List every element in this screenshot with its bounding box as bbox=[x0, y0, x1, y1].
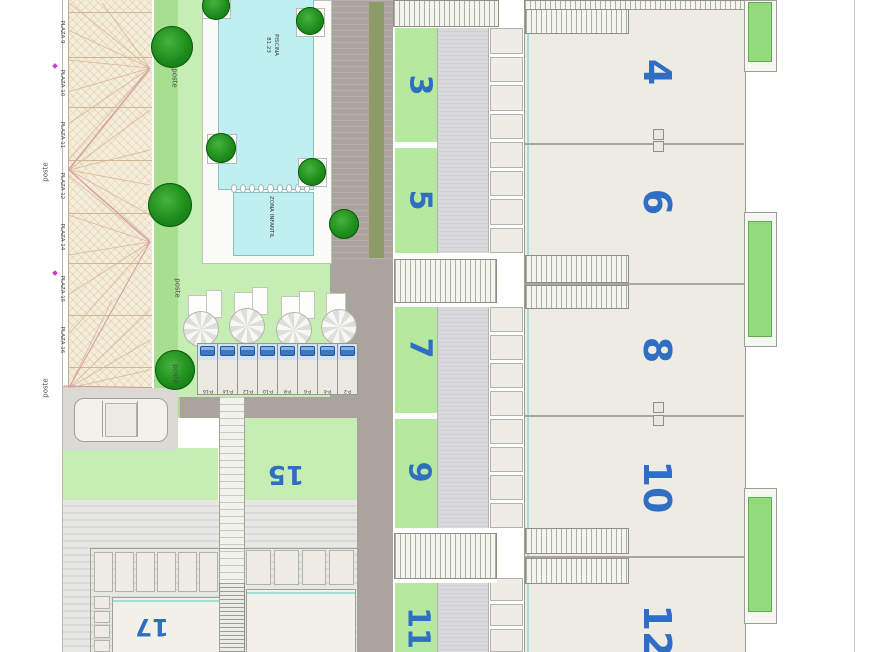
parking-stall: P-2 bbox=[337, 343, 358, 395]
unit-9-number: 9 bbox=[402, 462, 437, 483]
storage-row-a bbox=[94, 552, 218, 592]
house-stair bbox=[525, 9, 629, 34]
roof-strip bbox=[437, 578, 489, 652]
unit-11-number: 11 bbox=[401, 607, 436, 649]
storage-row-b bbox=[246, 550, 354, 585]
tree-icon bbox=[329, 209, 359, 239]
tree-icon bbox=[298, 158, 326, 186]
unit-7-number: 7 bbox=[403, 338, 438, 359]
stepping-stone bbox=[240, 184, 246, 193]
unit-8-number: 8 bbox=[635, 337, 679, 363]
post-label: poste bbox=[42, 378, 50, 397]
terrace-cell bbox=[490, 307, 523, 332]
car-icon bbox=[220, 346, 235, 356]
house-stair bbox=[525, 285, 629, 309]
car-rear-window bbox=[137, 401, 138, 437]
dimension-marker bbox=[653, 141, 664, 152]
stall-label: P-10 bbox=[263, 388, 273, 393]
plaza-label: PLAZA 10 bbox=[56, 77, 68, 89]
parasol-icon bbox=[183, 311, 219, 347]
unit-17-number: 17 bbox=[135, 613, 168, 641]
unit-15-number: 15 bbox=[268, 459, 304, 489]
site-plan: PLAZA 9 PLAZA 10 PLAZA 11 PLAZA 12 PLAZA… bbox=[0, 0, 870, 652]
storage-cell bbox=[246, 550, 271, 585]
terrace-cell bbox=[490, 199, 523, 225]
storage-cell bbox=[94, 640, 110, 652]
unit-4-number: 4 bbox=[635, 59, 679, 85]
storage-cell bbox=[178, 552, 197, 592]
terrace-cell bbox=[490, 363, 523, 388]
balcony-garden bbox=[748, 2, 772, 62]
car bbox=[74, 398, 168, 442]
storage-cell bbox=[302, 550, 327, 585]
annex-room-glass-wall bbox=[247, 592, 355, 594]
covered-parking-row: P-16 P-14 P-12 P-10 P-8 P-6 P-4 bbox=[197, 343, 357, 395]
pergola-top bbox=[393, 0, 499, 27]
stall-label: P-8 bbox=[284, 388, 291, 393]
stall-label: P-4 bbox=[324, 388, 331, 393]
plaza-label: PLAZA 12 bbox=[56, 180, 68, 192]
unit-divider bbox=[524, 556, 744, 558]
lawn-southwest bbox=[63, 448, 218, 500]
unit-7-garden bbox=[395, 305, 437, 413]
sheet-edge-line bbox=[854, 0, 855, 652]
post-label: poste bbox=[42, 162, 50, 181]
unit-17-glass-wall bbox=[113, 600, 219, 602]
post-label: poste bbox=[172, 364, 180, 383]
balcony-garden bbox=[748, 497, 772, 612]
car-icon bbox=[280, 346, 295, 356]
road-vertical-lower bbox=[357, 418, 393, 652]
storage-cell bbox=[94, 625, 110, 638]
parking-stall: P-4 bbox=[317, 343, 338, 395]
terrace-cell bbox=[490, 171, 523, 197]
parking-stall: P-10 bbox=[257, 343, 278, 395]
terrace-cell bbox=[490, 228, 523, 254]
terrace-cell bbox=[490, 629, 523, 652]
plaza-label: PLAZA 11 bbox=[56, 129, 68, 141]
stall-label: P-14 bbox=[223, 388, 233, 393]
parasol-icon bbox=[229, 308, 265, 344]
storage-cell bbox=[199, 552, 218, 592]
unit-divider bbox=[524, 143, 744, 145]
unit-12-number: 12 bbox=[635, 605, 679, 652]
unit-3-number: 3 bbox=[403, 75, 438, 96]
terrace-cell bbox=[490, 604, 523, 627]
plaza-label: PLAZA 9 bbox=[56, 26, 68, 38]
tree-icon bbox=[148, 183, 192, 227]
stall-label: P-16 bbox=[203, 388, 213, 393]
parasol-icon bbox=[321, 309, 357, 345]
post-label: poste bbox=[174, 278, 182, 297]
car-cabin bbox=[105, 403, 137, 437]
roof-strip bbox=[437, 307, 489, 528]
terrace-cell bbox=[490, 57, 523, 83]
balcony-garden bbox=[748, 221, 772, 337]
dimension-marker bbox=[653, 402, 664, 413]
stepping-stone bbox=[277, 184, 283, 193]
pool-area: 81.23 bbox=[264, 22, 272, 68]
storage-cell bbox=[136, 552, 155, 592]
roof-strip bbox=[437, 28, 489, 253]
terrace-column bbox=[490, 578, 523, 652]
tree-icon bbox=[151, 26, 193, 68]
house-stair bbox=[525, 528, 629, 554]
parking-stall: P-14 bbox=[217, 343, 238, 395]
kids-zone-label: ZONA INFANTIL bbox=[264, 192, 274, 242]
annex-room-right bbox=[246, 589, 356, 652]
car-icon bbox=[300, 346, 315, 356]
storage-cell bbox=[274, 550, 299, 585]
post-label: poste bbox=[171, 68, 179, 87]
pool-name: PISCINA bbox=[272, 22, 280, 68]
dimension-marker bbox=[653, 415, 664, 426]
parking-stall: P-12 bbox=[237, 343, 258, 395]
terrace-cell bbox=[490, 85, 523, 111]
unit-divider bbox=[524, 283, 744, 285]
car-icon bbox=[340, 346, 355, 356]
plaza-label: PLAZA 14 bbox=[56, 231, 68, 243]
unit-10-number: 10 bbox=[635, 461, 679, 514]
stall-label: P-2 bbox=[344, 388, 351, 393]
car-windshield bbox=[102, 401, 103, 437]
terrace-cell bbox=[490, 142, 523, 168]
car-icon bbox=[260, 346, 275, 356]
road-hedge-strip bbox=[369, 2, 384, 258]
storage-cell bbox=[94, 552, 113, 592]
storage-cell bbox=[94, 611, 110, 624]
stair-band bbox=[394, 259, 497, 303]
stair-band bbox=[394, 533, 497, 579]
parking-stall: P-8 bbox=[277, 343, 298, 395]
house-stair bbox=[525, 558, 629, 584]
parking-stall: P-16 bbox=[197, 343, 218, 395]
terrace-column bbox=[490, 307, 523, 528]
terrace-cell bbox=[490, 28, 523, 54]
storage-cell bbox=[157, 552, 176, 592]
parking-stall: P-6 bbox=[297, 343, 318, 395]
stepping-stone bbox=[231, 184, 237, 193]
terrace-cell bbox=[490, 503, 523, 528]
house-stair bbox=[525, 255, 629, 283]
plaza-label-column: PLAZA 9 PLAZA 10 PLAZA 11 PLAZA 12 PLAZA… bbox=[56, 26, 68, 346]
terrace-cell bbox=[490, 419, 523, 444]
unit-5-number: 5 bbox=[403, 190, 438, 211]
unit-divider bbox=[524, 415, 744, 417]
terrace-cell bbox=[490, 391, 523, 416]
plaza-label: PLAZA 16 bbox=[56, 334, 68, 346]
pool-label: PISCINA 81.23 bbox=[264, 22, 280, 68]
stepping-stone bbox=[286, 184, 292, 193]
terrace-column bbox=[490, 28, 523, 253]
car-icon bbox=[240, 346, 255, 356]
tree-icon bbox=[206, 133, 236, 163]
stall-label: P-12 bbox=[243, 388, 253, 393]
terrace-cell bbox=[490, 335, 523, 360]
storage-cell bbox=[94, 596, 110, 609]
unit-6-number: 6 bbox=[635, 189, 679, 215]
terrace-cell bbox=[490, 447, 523, 472]
car-icon bbox=[320, 346, 335, 356]
dimension-marker bbox=[653, 129, 664, 140]
storage-cell bbox=[115, 552, 134, 592]
tree-icon bbox=[296, 7, 324, 35]
terrace-cell bbox=[490, 114, 523, 140]
stepping-stone bbox=[249, 184, 255, 193]
road-horizontal bbox=[178, 395, 330, 418]
storage-col-left bbox=[94, 596, 110, 652]
plaza-label: PLAZA 15 bbox=[56, 283, 68, 295]
storage-cell bbox=[329, 550, 354, 585]
car-icon bbox=[200, 346, 215, 356]
terrace-cell bbox=[490, 475, 523, 500]
stall-label: P-6 bbox=[304, 388, 311, 393]
